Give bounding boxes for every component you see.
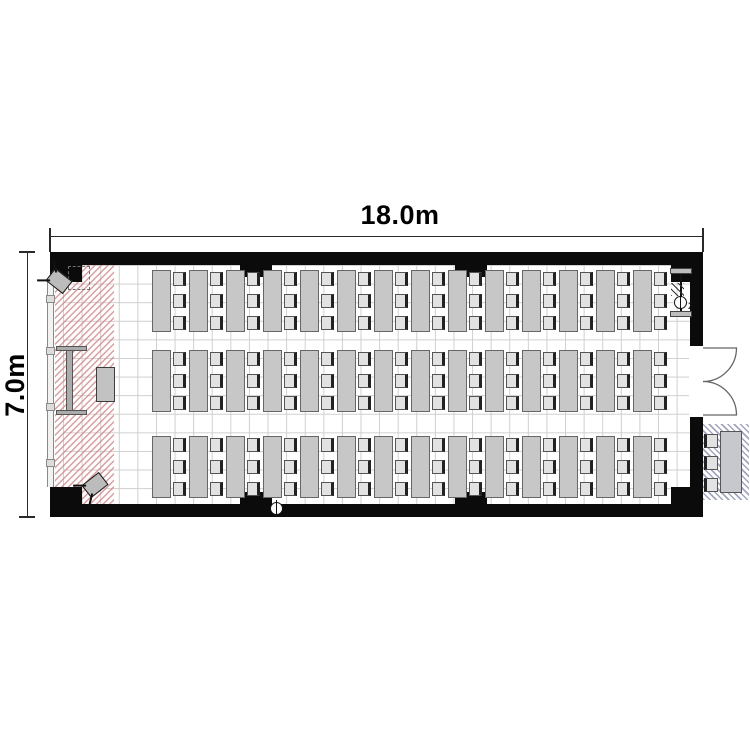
table-unit [337, 436, 373, 498]
chair [321, 316, 334, 330]
chair [247, 438, 260, 452]
table-unit [152, 350, 188, 412]
chair [395, 316, 408, 330]
partition-joint [46, 459, 55, 467]
table [633, 350, 652, 412]
table-unit [337, 270, 373, 332]
chair [506, 438, 519, 452]
chair [432, 438, 445, 452]
chair [247, 374, 260, 388]
table-unit [337, 350, 373, 412]
table [152, 350, 171, 412]
table-unit [485, 436, 521, 498]
table-unit [263, 350, 299, 412]
table [633, 436, 652, 498]
table [226, 270, 245, 332]
table [559, 436, 578, 498]
floor-plan: 2 2 18.0m 7.0m [0, 0, 750, 750]
chair [358, 272, 371, 286]
table-unit [596, 436, 632, 498]
reception-chair [704, 434, 718, 448]
chair [543, 316, 556, 330]
chair [506, 352, 519, 366]
chair [654, 374, 667, 388]
chair [654, 272, 667, 286]
table [300, 436, 319, 498]
chair [321, 294, 334, 308]
chair [284, 316, 297, 330]
chair [469, 460, 482, 474]
table-unit [633, 436, 669, 498]
table [485, 436, 504, 498]
chair [580, 438, 593, 452]
table [189, 270, 208, 332]
table [559, 270, 578, 332]
table-unit [485, 270, 521, 332]
table [300, 270, 319, 332]
table-unit [559, 270, 595, 332]
chair [580, 272, 593, 286]
chair [358, 438, 371, 452]
outlet-count-bottom: 2 [285, 507, 290, 517]
table [485, 350, 504, 412]
chair [580, 482, 593, 496]
table [448, 270, 467, 332]
table-unit [596, 350, 632, 412]
chair [506, 482, 519, 496]
chair [210, 294, 223, 308]
chair [284, 294, 297, 308]
chair [395, 438, 408, 452]
chair [543, 482, 556, 496]
chair [543, 396, 556, 410]
chair [358, 352, 371, 366]
chair [210, 316, 223, 330]
table [226, 350, 245, 412]
table-unit [522, 270, 558, 332]
table [596, 436, 615, 498]
chair [432, 374, 445, 388]
chair [506, 374, 519, 388]
chair [321, 352, 334, 366]
table-unit [300, 436, 336, 498]
chair [395, 396, 408, 410]
outlet-icon-right [674, 296, 687, 309]
table-unit [374, 350, 410, 412]
chair [506, 396, 519, 410]
table [522, 270, 541, 332]
chair [469, 438, 482, 452]
chair [321, 438, 334, 452]
table-unit [522, 350, 558, 412]
left-partition-wall [47, 281, 54, 487]
outlet-icon-bottom [270, 502, 283, 515]
chair [395, 272, 408, 286]
chair [358, 294, 371, 308]
chair [617, 482, 630, 496]
table [374, 270, 393, 332]
chair [358, 460, 371, 474]
chair [543, 294, 556, 308]
table [522, 350, 541, 412]
table-unit [263, 436, 299, 498]
reception-table [720, 431, 742, 493]
table [337, 270, 356, 332]
dimension-tick [702, 228, 704, 252]
table [633, 270, 652, 332]
table-unit [633, 350, 669, 412]
chair [543, 374, 556, 388]
chair [284, 438, 297, 452]
table [300, 350, 319, 412]
table [337, 436, 356, 498]
chair [432, 316, 445, 330]
chair [543, 272, 556, 286]
chair [247, 482, 260, 496]
chair [506, 460, 519, 474]
mount-box-outline [68, 266, 90, 290]
chair [432, 460, 445, 474]
table [189, 350, 208, 412]
table-unit [189, 270, 225, 332]
chair [173, 438, 186, 452]
table [374, 350, 393, 412]
table-unit [411, 350, 447, 412]
chair [321, 396, 334, 410]
table-unit [152, 270, 188, 332]
table [596, 270, 615, 332]
table-unit [226, 436, 262, 498]
chair [247, 316, 260, 330]
table [448, 436, 467, 498]
table [559, 350, 578, 412]
table-unit [559, 436, 595, 498]
chair [469, 272, 482, 286]
table-unit [559, 350, 595, 412]
height-dimension-label: 7.0m [0, 345, 28, 425]
chair [654, 352, 667, 366]
table [226, 436, 245, 498]
table-unit [596, 270, 632, 332]
chair [580, 374, 593, 388]
table-unit [300, 270, 336, 332]
dimension-line-width [50, 236, 703, 237]
table [411, 270, 430, 332]
table [189, 436, 208, 498]
double-door-icon [701, 343, 748, 421]
table-unit [411, 270, 447, 332]
chair [210, 396, 223, 410]
chair [358, 316, 371, 330]
table-unit [189, 350, 225, 412]
chair [395, 482, 408, 496]
dimension-tick [49, 228, 51, 252]
chair [506, 316, 519, 330]
chair [654, 438, 667, 452]
chair [247, 294, 260, 308]
corner-column-top-right [671, 252, 703, 282]
chair [321, 272, 334, 286]
lectern [96, 367, 115, 402]
dimension-tick [19, 516, 35, 518]
chair [173, 482, 186, 496]
table [152, 270, 171, 332]
chair [173, 294, 186, 308]
table [411, 436, 430, 498]
chair [654, 460, 667, 474]
chair [247, 352, 260, 366]
chair [395, 460, 408, 474]
screen-icon [66, 350, 73, 411]
chair [173, 316, 186, 330]
width-dimension-label: 18.0m [200, 200, 600, 231]
table-unit [226, 270, 262, 332]
chair [543, 438, 556, 452]
chair [284, 460, 297, 474]
table [522, 436, 541, 498]
partition-joint [46, 347, 55, 355]
partition-joint [46, 403, 55, 411]
table-unit [300, 350, 336, 412]
chair [506, 272, 519, 286]
chair [210, 460, 223, 474]
chair [284, 482, 297, 496]
table-unit [152, 436, 188, 498]
chair [210, 374, 223, 388]
table [374, 436, 393, 498]
chair [284, 352, 297, 366]
chair [432, 396, 445, 410]
table-unit [374, 270, 410, 332]
table [152, 436, 171, 498]
table-unit [189, 436, 225, 498]
chair [617, 272, 630, 286]
fixture-cap-bottom [670, 311, 692, 317]
chair [469, 374, 482, 388]
chair [247, 396, 260, 410]
chair [654, 482, 667, 496]
table [263, 270, 282, 332]
chair [654, 396, 667, 410]
table [263, 350, 282, 412]
table-unit [226, 350, 262, 412]
chair [506, 294, 519, 308]
chair [617, 294, 630, 308]
chair [247, 272, 260, 286]
chair [469, 316, 482, 330]
table-unit [448, 436, 484, 498]
chair [358, 374, 371, 388]
table-unit [374, 436, 410, 498]
chair [395, 294, 408, 308]
chair [654, 294, 667, 308]
chair [580, 396, 593, 410]
table-unit [522, 436, 558, 498]
corner-column-bottom-left [50, 487, 82, 517]
table [448, 350, 467, 412]
outlet-count-right: 2 [688, 301, 693, 311]
reception-chair [704, 456, 718, 470]
screen-bottom-cap [56, 410, 87, 415]
hatch-marks-icon [671, 283, 684, 296]
table [263, 436, 282, 498]
chair [173, 272, 186, 286]
chair [617, 316, 630, 330]
chair [432, 352, 445, 366]
chair [580, 294, 593, 308]
chair [284, 396, 297, 410]
table-unit [448, 350, 484, 412]
chair [321, 374, 334, 388]
partition-joint [46, 295, 55, 303]
chair [469, 396, 482, 410]
chair [432, 482, 445, 496]
chair [173, 374, 186, 388]
chair [395, 352, 408, 366]
chair [469, 352, 482, 366]
chair [432, 294, 445, 308]
chair [358, 482, 371, 496]
chair [543, 460, 556, 474]
chair [284, 272, 297, 286]
chair [210, 482, 223, 496]
chair [173, 460, 186, 474]
chair [284, 374, 297, 388]
table-unit [411, 436, 447, 498]
chair [432, 272, 445, 286]
chair [580, 460, 593, 474]
chair [321, 460, 334, 474]
chair [617, 352, 630, 366]
chair [247, 460, 260, 474]
chair [543, 352, 556, 366]
chair [617, 438, 630, 452]
table [485, 270, 504, 332]
chair [210, 272, 223, 286]
chair [210, 438, 223, 452]
chair [210, 352, 223, 366]
table-unit [485, 350, 521, 412]
dimension-tick [19, 251, 35, 253]
chair [321, 482, 334, 496]
chair [395, 374, 408, 388]
table [596, 350, 615, 412]
chair [173, 352, 186, 366]
chair [617, 396, 630, 410]
chair [654, 316, 667, 330]
table-unit [633, 270, 669, 332]
corner-column-bottom-right [671, 487, 703, 517]
chair [469, 482, 482, 496]
chair [617, 460, 630, 474]
reception-chair [704, 478, 718, 492]
table-unit [263, 270, 299, 332]
table-unit [448, 270, 484, 332]
table [337, 350, 356, 412]
chair [173, 396, 186, 410]
chair [469, 294, 482, 308]
chair [580, 352, 593, 366]
table [411, 350, 430, 412]
chair [580, 316, 593, 330]
chair [358, 396, 371, 410]
chair [617, 374, 630, 388]
